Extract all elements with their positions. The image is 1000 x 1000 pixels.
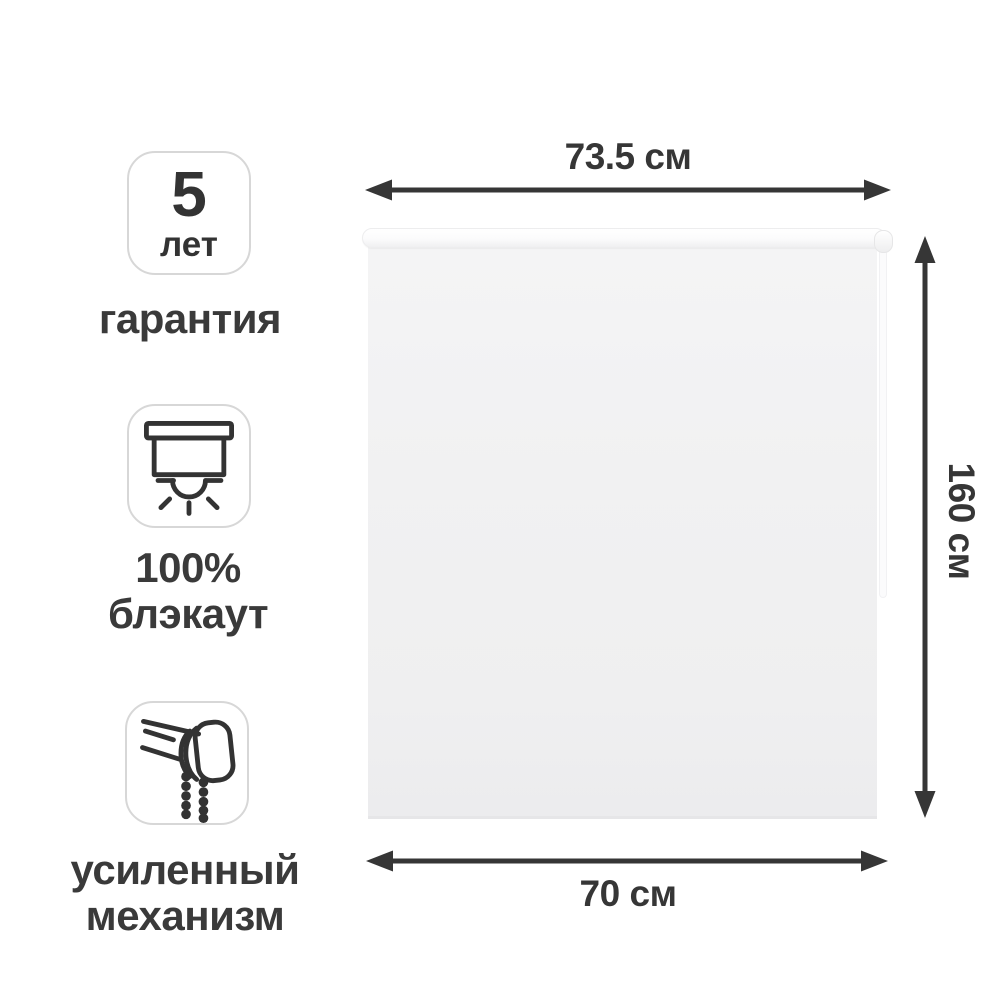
blind-fabric: [368, 247, 877, 819]
warranty-caption: гарантия: [25, 296, 355, 342]
blind-tube-end-cap: [874, 230, 893, 253]
height-arrow: [915, 236, 936, 818]
mechanism-caption: усиленный механизм: [20, 847, 350, 939]
reinforced-mechanism-icon: [127, 703, 247, 823]
blind-chain: [879, 250, 887, 598]
warranty-years-unit: лет: [160, 227, 218, 262]
blackout-caption: 100% блэкаут: [23, 545, 353, 637]
product-infographic: 5 лет гарантия 100% блэкаут: [0, 0, 1000, 1000]
mechanism-badge: [125, 701, 249, 825]
mechanism-caption-line2: механизм: [20, 893, 350, 939]
height-label: 160 см: [940, 463, 982, 580]
blackout-badge: [127, 404, 251, 528]
blackout-icon: [129, 406, 249, 526]
top-width-label: 73.5 см: [565, 136, 692, 178]
warranty-years-value: 5: [171, 164, 207, 225]
bottom-width-arrow: [366, 851, 888, 872]
blackout-caption-line1: 100%: [23, 545, 353, 591]
top-width-arrow: [365, 180, 891, 201]
blackout-caption-line2: блэкаут: [23, 591, 353, 637]
bottom-width-label: 70 см: [580, 873, 677, 915]
mechanism-caption-line1: усиленный: [20, 847, 350, 893]
blind-cassette-tube: [362, 228, 886, 248]
warranty-badge: 5 лет: [127, 151, 251, 275]
